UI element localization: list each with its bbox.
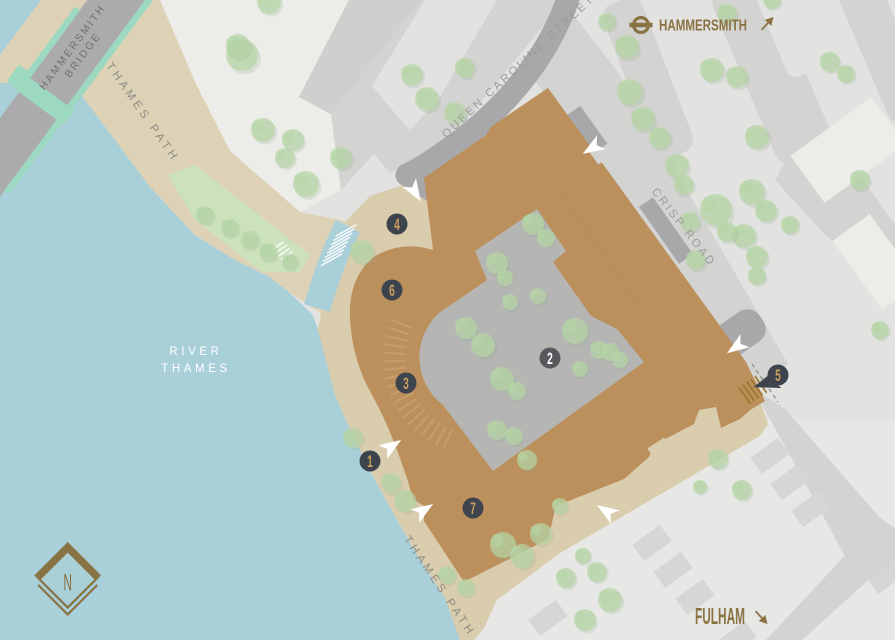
svg-text:FULHAM: FULHAM bbox=[695, 603, 745, 629]
svg-text:4: 4 bbox=[394, 214, 400, 233]
svg-text:N: N bbox=[63, 570, 72, 597]
svg-text:3: 3 bbox=[403, 373, 409, 392]
svg-text:7: 7 bbox=[470, 498, 476, 517]
svg-text:THAMES: THAMES bbox=[161, 363, 231, 375]
svg-text:RIVER: RIVER bbox=[169, 346, 222, 358]
svg-text:2: 2 bbox=[547, 348, 553, 367]
svg-text:6: 6 bbox=[389, 280, 395, 299]
svg-text:5: 5 bbox=[775, 365, 781, 384]
svg-text:1: 1 bbox=[367, 451, 373, 470]
svg-text:HAMMERSMITH: HAMMERSMITH bbox=[659, 18, 747, 35]
